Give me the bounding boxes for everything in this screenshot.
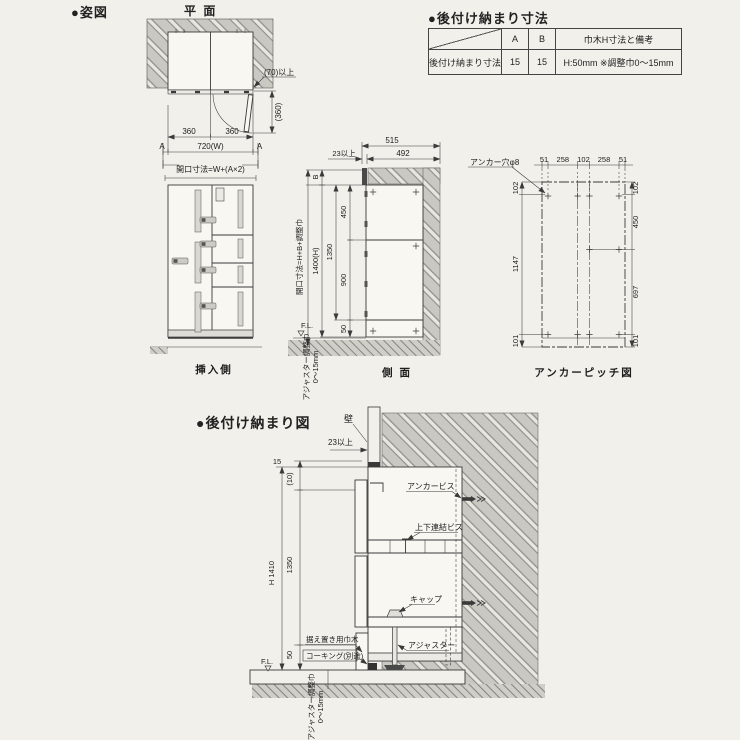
detail-adjuster-range-value: 0〜15mm: [316, 691, 325, 724]
plan-view-diagram: (70)以上 (360) 360 360 A 720(W) A 開口寸法=W+(…: [140, 15, 310, 183]
caulking-part: [368, 663, 377, 670]
dim-50: 50: [339, 325, 348, 333]
dim-23min: 23以上: [332, 149, 356, 158]
anchor-dimensions: アンカー穴φ8 51 258 102 258 51 102 1147 101 1…: [468, 155, 640, 347]
cap-label: キャップ: [410, 595, 442, 604]
anchor-top-dim-0: 51: [540, 155, 548, 164]
dim-360-vertical: (360): [274, 102, 283, 121]
anchor-left-dim-1: 1147: [511, 256, 520, 272]
side-view-diagram: 515 23以上 492 開口寸法=H+B+調整巾 B 1400(H) 1350…: [288, 135, 448, 397]
adjuster-range-value: 0〜15mm: [311, 351, 320, 384]
detail-dim-23: 23以上: [328, 438, 353, 447]
dim-450: 450: [339, 206, 348, 219]
table-value-note: H:50mm ※調整巾0〜15mm: [555, 49, 681, 74]
anchor-diagram-caption: アンカーピッチ図: [534, 367, 634, 379]
drawing-sheet: { "titles": { "shizu": "●姿図", "plan": "平…: [0, 0, 740, 740]
dim-1350: 1350: [325, 244, 334, 261]
detail-dim-50: 50: [285, 651, 294, 659]
anchor-top-dim-1: 258: [557, 155, 570, 164]
mark-a-right: A: [257, 142, 263, 151]
detail-dim-1350: 1350: [285, 557, 294, 574]
dim-515: 515: [385, 136, 399, 145]
anchor-right-dim-2: 697: [631, 286, 640, 299]
front-view-diagram: 挿入側: [150, 178, 285, 382]
adjuster-range-label: アジャスター調整巾: [301, 334, 311, 401]
dim-900: 900: [339, 274, 348, 287]
table-header-a: A: [501, 29, 528, 49]
anchor-right-dim-1: 450: [631, 216, 640, 229]
mark-b: B: [311, 174, 320, 179]
table-header-note: 巾木H寸法と備考: [555, 29, 681, 49]
dim-720w: 720(W): [197, 142, 224, 151]
opening-height-formula: 開口寸法=H+B+調整巾: [294, 219, 304, 295]
anchor-screw-label: アンカービス: [407, 482, 455, 491]
installation-detail-diagram: 壁 23以上 アンカービス 上下連結ビス キャップ アジャスター 据え置き用巾木…: [240, 405, 550, 740]
anchor-right-dim-3: 101: [631, 335, 640, 348]
anchor-top-dim-2: 102: [577, 155, 590, 164]
caulking-label: コーキング(別途): [306, 651, 364, 661]
dimension-table: A B 巾木H寸法と備考 後付け納まり寸法 15 15 H:50mm ※調整巾0…: [428, 28, 682, 75]
table-header-b: B: [528, 29, 555, 49]
anchor-hole-label: アンカー穴φ8: [470, 157, 520, 167]
detail-dim-h1410: H 1410: [267, 561, 276, 585]
side-view-caption: 側 面: [381, 366, 412, 379]
detail-dim-10: (10): [285, 472, 294, 486]
joint-screw-label: 上下連結ビス: [415, 522, 463, 532]
adjuster-part: [393, 627, 398, 665]
dim-492: 492: [396, 149, 410, 158]
detail-cabinet: [355, 467, 462, 670]
wall-label: 壁: [344, 413, 353, 424]
anchor-left-dim-2: 101: [511, 335, 520, 348]
anchor-right-dim-0: 102: [631, 182, 640, 195]
anchor-top-dim-4: 51: [619, 155, 627, 164]
anchor-top-dim-3: 258: [598, 155, 611, 164]
dim-360-left: 360: [182, 127, 196, 136]
table-row-label: 後付け納まり寸法: [429, 49, 501, 74]
fl-label: F.L.: [301, 321, 313, 330]
anchor-left-dim-0: 102: [511, 182, 520, 195]
detail-fl-label: F.L.: [261, 657, 273, 666]
plan-unit: [168, 29, 253, 94]
side-cabinet: [365, 185, 424, 337]
detail-dim-15: 15: [273, 457, 281, 466]
table-title: ●後付け納まり寸法: [428, 8, 549, 27]
skirting-label: 据え置き用巾木: [306, 634, 359, 644]
anchor-holes: [545, 193, 622, 338]
figure-title-appearance: ●姿図: [71, 2, 108, 21]
dim-1400h: 1400(H): [311, 247, 320, 275]
table-value-a: 15: [501, 49, 528, 74]
detail-adjuster-range-label: アジャスター調整巾: [306, 674, 316, 740]
anchor-pitch-diagram: アンカー穴φ8 51 258 102 258 51 102 1147 101 1…: [460, 140, 660, 390]
anchor-outline: [542, 182, 625, 347]
front-view-caption: 挿入側: [195, 363, 233, 376]
dim-70-min: (70)以上: [264, 68, 294, 77]
mark-a-left: A: [159, 142, 165, 151]
table-value-b: 15: [528, 49, 555, 74]
opening-width-formula: 開口寸法=W+(A×2): [176, 164, 245, 174]
dim-360-right: 360: [225, 127, 239, 136]
table-diagonal-cell: [429, 29, 501, 49]
adjuster-label: アジャスター: [408, 641, 455, 650]
adjuster-foot: [384, 665, 405, 670]
